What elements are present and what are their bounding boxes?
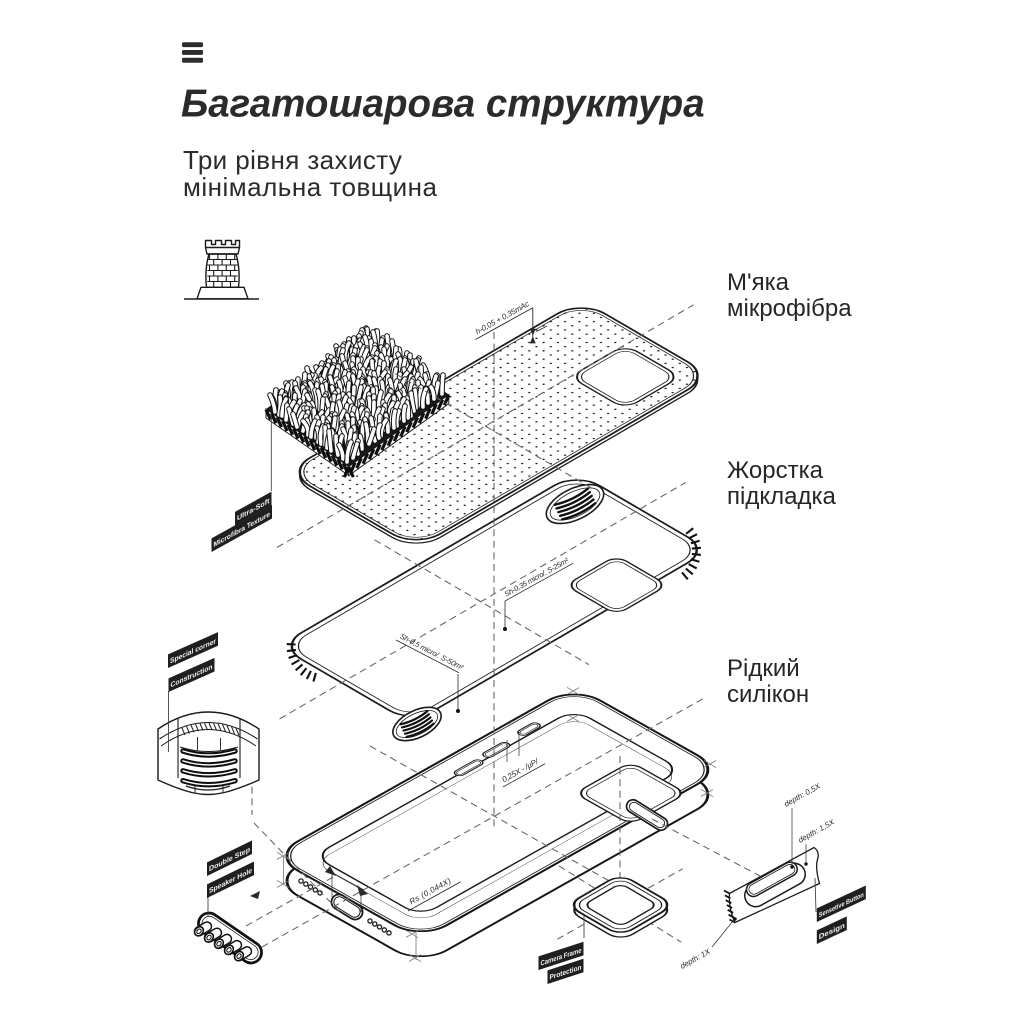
svg-text:Жорстка: Жорстка: [727, 457, 824, 484]
svg-text:depth: 1,5X: depth: 1,5X: [797, 817, 837, 845]
svg-text:підкладка: підкладка: [727, 483, 836, 510]
svg-text:depth: 1X: depth: 1X: [679, 946, 713, 970]
svg-text:Три рівня захисту: Три рівня захисту: [183, 145, 402, 175]
svg-text:мінімальна товщина: мінімальна товщина: [183, 172, 438, 202]
svg-text:М'яка: М'яка: [727, 269, 790, 296]
svg-text:depth: 0,5X: depth: 0,5X: [783, 781, 823, 809]
svg-text:силікон: силікон: [727, 681, 809, 708]
svg-text:мікрофібра: мікрофібра: [727, 295, 852, 322]
svg-text:Рідкий: Рідкий: [727, 655, 800, 682]
svg-text:h-0,05 + 0,35mAc: h-0,05 + 0,35mAc: [474, 299, 531, 336]
svg-text:Багатошарова структура: Багатошарова структура: [181, 83, 705, 126]
